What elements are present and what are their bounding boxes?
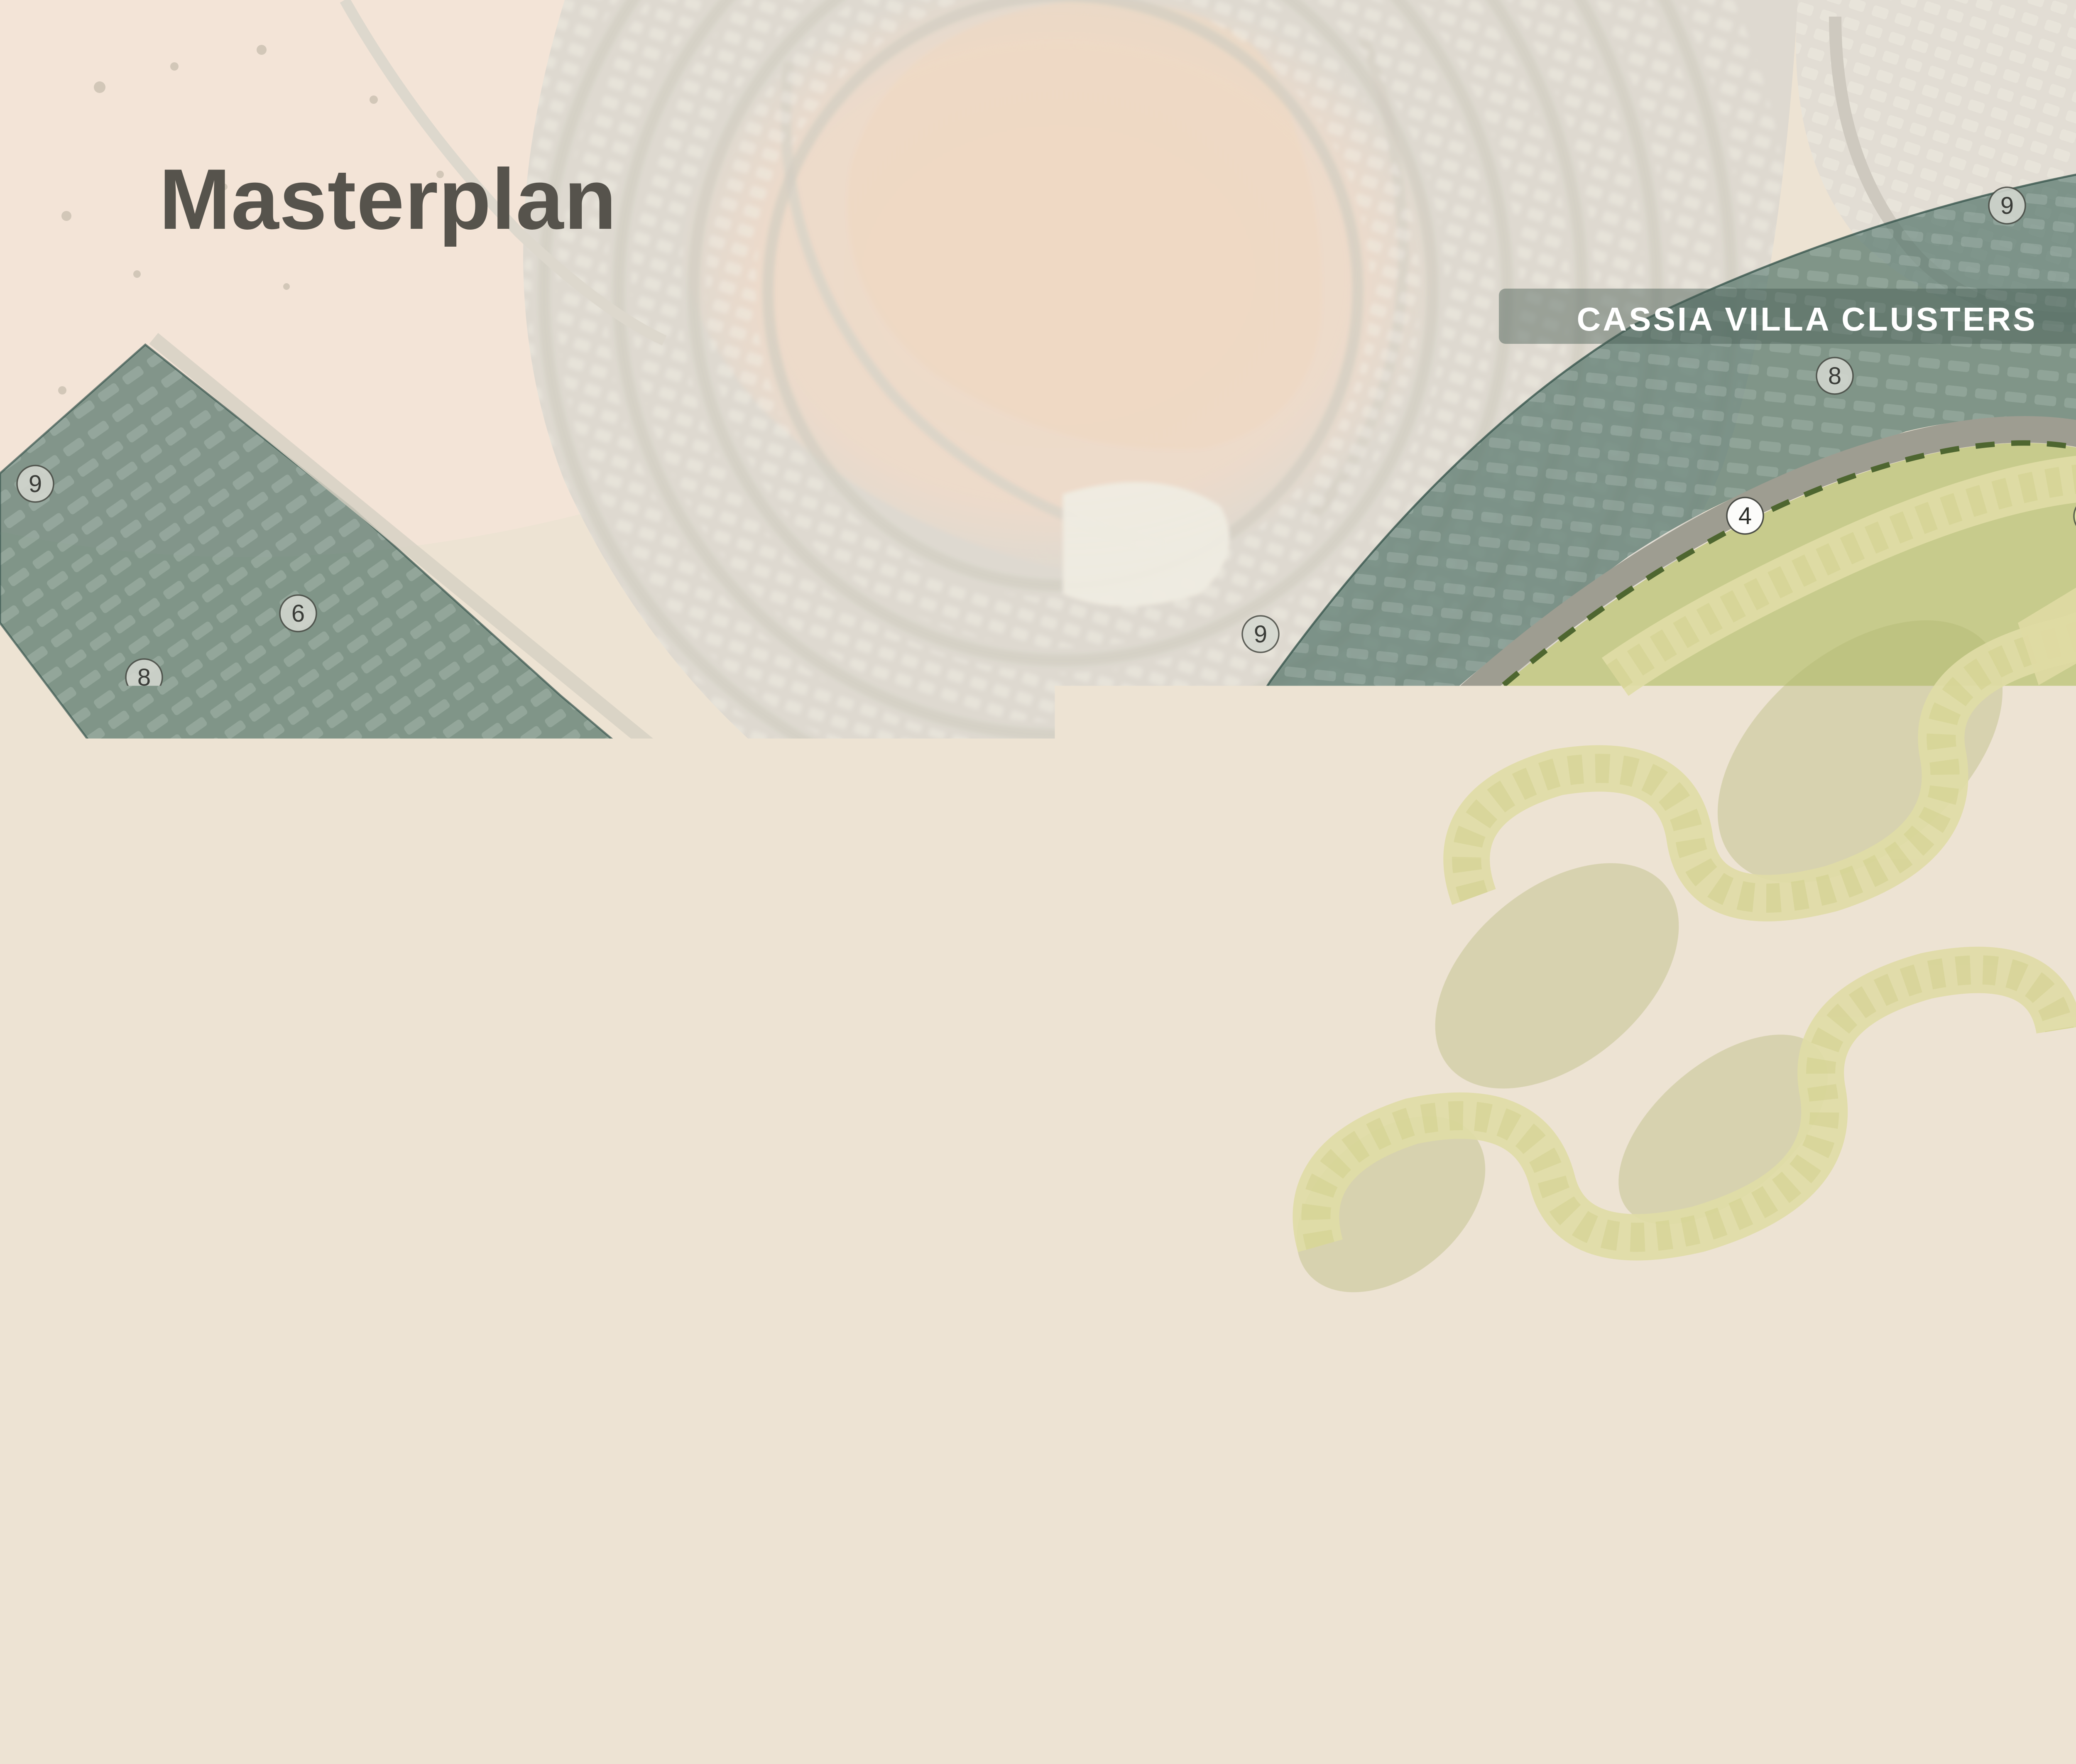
svg-text:5: 5	[1547, 1025, 1560, 1052]
svg-text:6: 6	[291, 600, 305, 627]
svg-text:7: 7	[1398, 1180, 1412, 1207]
svg-text:8: 8	[137, 664, 151, 691]
svg-text:9: 9	[1740, 1497, 1753, 1524]
svg-text:9: 9	[29, 470, 42, 497]
svg-text:4: 4	[1736, 1210, 1750, 1237]
svg-text:8: 8	[1694, 1368, 1707, 1395]
svg-text:7: 7	[1881, 951, 1895, 978]
svg-text:9: 9	[1254, 621, 1267, 648]
svg-text:5: 5	[1901, 698, 1914, 725]
svg-text:6: 6	[1147, 1205, 1160, 1232]
svg-text:4: 4	[913, 1230, 927, 1257]
svg-text:9: 9	[2000, 192, 2014, 219]
svg-text:CASSIA VILLA CLUSTERS: CASSIA VILLA CLUSTERS	[338, 906, 936, 943]
svg-text:8: 8	[1828, 363, 1841, 390]
svg-text:8: 8	[914, 1363, 927, 1390]
svg-text:8: 8	[1325, 696, 1338, 723]
svg-text:RAVENNA RESIDENCES: RAVENNA RESIDENCES	[1514, 866, 1908, 898]
svg-text:9: 9	[698, 1374, 711, 1401]
svg-text:7: 7	[1564, 759, 1578, 786]
svg-text:CASSIA VILLA CLUSTERS: CASSIA VILLA CLUSTERS	[1577, 301, 2037, 338]
svg-text:Masterplan: Masterplan	[159, 151, 617, 247]
svg-text:9: 9	[653, 772, 666, 799]
svg-text:8: 8	[644, 882, 657, 909]
svg-text:2: 2	[365, 968, 378, 995]
svg-text:6: 6	[577, 955, 590, 982]
svg-text:4: 4	[1738, 502, 1752, 529]
svg-text:CENTRAL PARK CLUSTER: CENTRAL PARK CLUSTER	[1478, 829, 1944, 861]
svg-text:SHAIKH MOHAMED BIN ZAYED ROAD: SHAIKH MOHAMED BIN ZAYED ROAD	[930, 1597, 1645, 1641]
